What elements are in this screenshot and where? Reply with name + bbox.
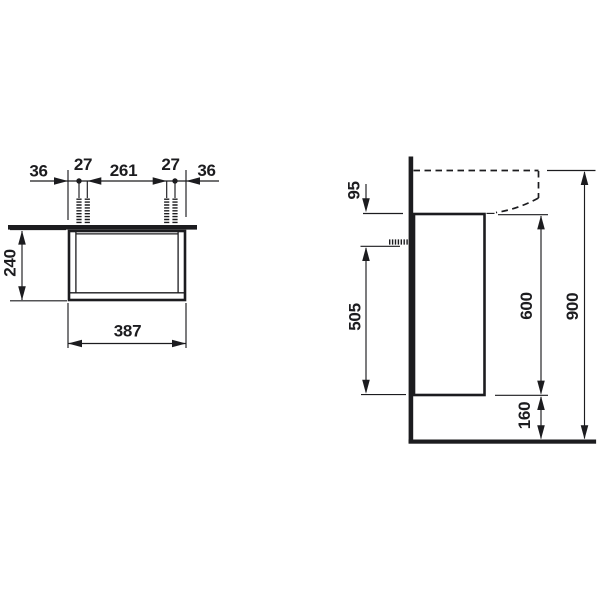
arrowhead — [537, 381, 545, 395]
floor-line — [409, 440, 596, 444]
arrowhead — [362, 247, 370, 261]
arrowhead — [581, 425, 589, 439]
dim-label-505: 505 — [346, 303, 365, 330]
dim-label-36-left: 36 — [29, 162, 47, 181]
arrowhead — [87, 177, 101, 185]
arrowhead — [537, 215, 545, 229]
dim-label-36-right: 36 — [197, 161, 215, 180]
arrowhead — [537, 396, 545, 410]
dim-label-900: 900 — [563, 293, 582, 320]
dim-label-27-left: 27 — [74, 155, 92, 174]
arrowhead — [581, 171, 589, 185]
arrowhead — [537, 425, 545, 439]
technical-drawing: 36 27 261 27 36 240 387 — [0, 0, 600, 600]
dim-label-600: 600 — [517, 292, 536, 319]
arrowhead — [18, 286, 26, 300]
arrowhead — [18, 231, 26, 245]
arrowhead — [153, 177, 167, 185]
dim-dot — [76, 178, 81, 183]
dim-label-240: 240 — [0, 249, 19, 276]
arrowhead — [68, 340, 82, 348]
dim-dot — [172, 178, 177, 183]
arrowhead — [172, 340, 186, 348]
washbasin-dashed-underside — [496, 198, 539, 213]
cabinet-plan-outline — [69, 231, 185, 300]
dim-label-261: 261 — [110, 161, 137, 180]
side-view: 95 505 600 160 900 — [345, 157, 597, 444]
wall-section-side — [409, 157, 414, 444]
plan-view: 36 27 261 27 36 240 387 — [0, 155, 219, 348]
dim-label-387: 387 — [114, 322, 141, 341]
arrowhead — [54, 177, 68, 185]
dim-label-95: 95 — [345, 181, 364, 199]
dim-label-160: 160 — [515, 402, 534, 429]
wall-section-plan — [8, 225, 197, 230]
dim-label-27-right: 27 — [161, 155, 179, 174]
arrowhead — [362, 380, 370, 394]
cabinet-side-outline — [414, 214, 485, 395]
